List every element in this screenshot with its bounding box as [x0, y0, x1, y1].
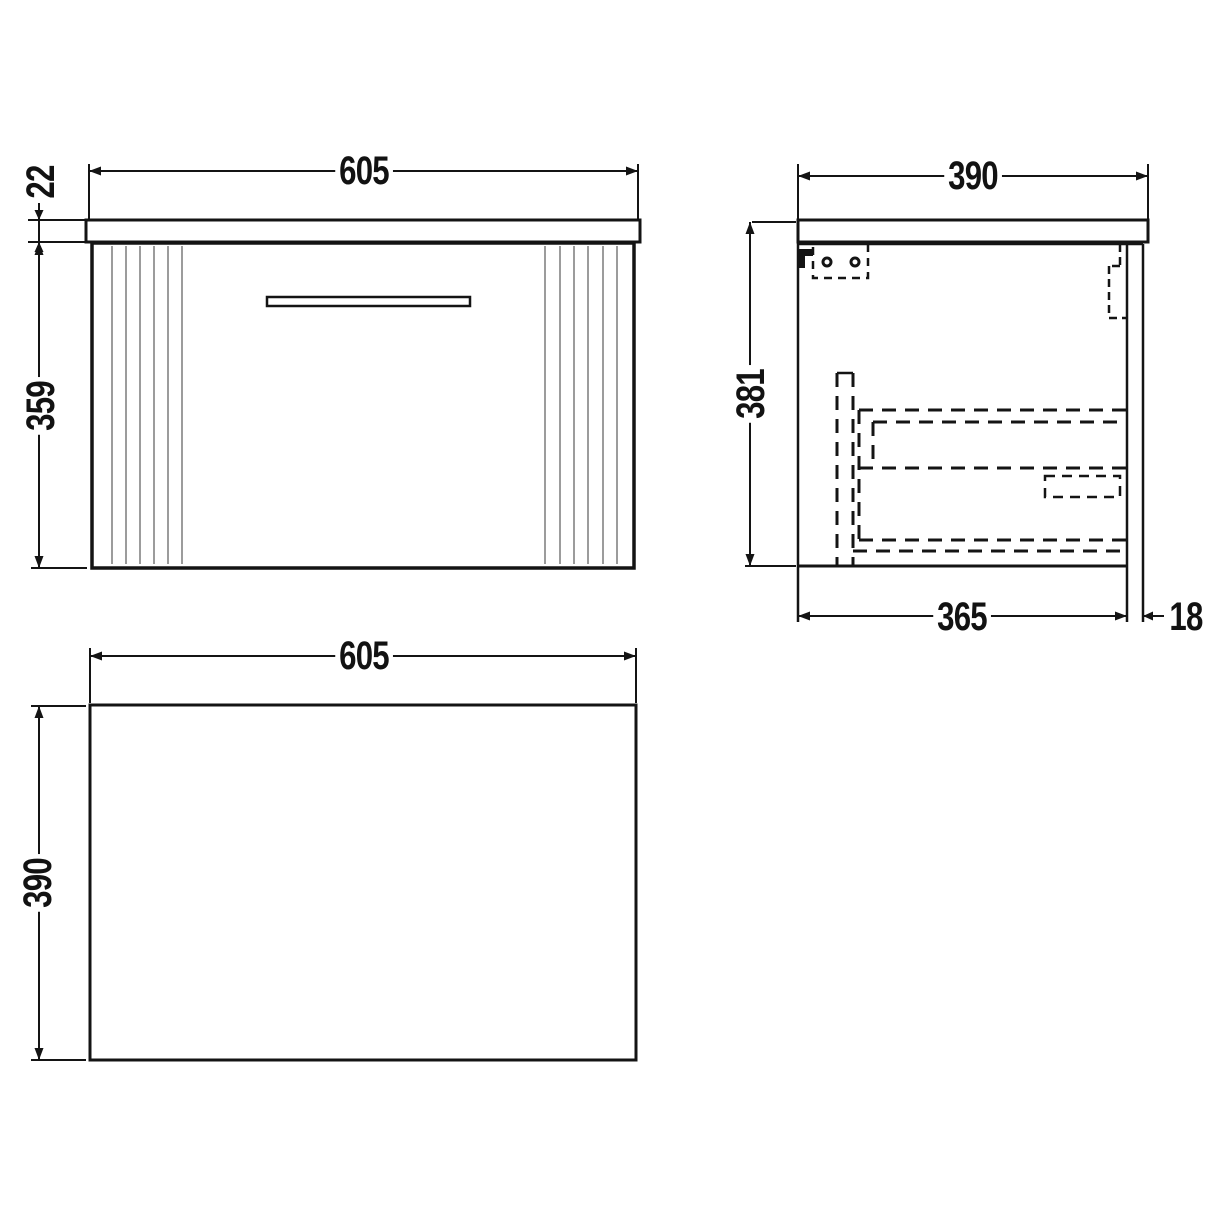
front-worktop [86, 220, 640, 242]
plan-worktop-outline [90, 705, 636, 1060]
technical-drawing [0, 0, 1224, 1224]
drawer-hidden-lines [837, 373, 1127, 566]
front-handle [267, 297, 470, 306]
wall-bracket-solid [798, 249, 813, 268]
side-worktop [798, 220, 1148, 242]
door-bracket-hidden [1109, 244, 1127, 318]
dim-label-front-width: 605 [335, 151, 393, 191]
front-view-drawing [86, 220, 640, 568]
dim-label-side-overall-depth: 390 [944, 156, 1002, 196]
drawing-sheet: 605 22 359 390 381 365 18 605 390 [0, 0, 1224, 1224]
dim-label-side-cabinet-depth: 365 [933, 597, 991, 637]
dim-label-side-panel-thickness: 18 [1166, 597, 1207, 637]
bracket-screw-hole [851, 258, 859, 266]
plan-view-drawing [90, 705, 636, 1060]
dim-label-side-overall-height: 381 [731, 365, 771, 423]
drawer-runner-hidden [1045, 476, 1120, 497]
bracket-screw-hole [823, 258, 831, 266]
dim-label-front-cabinet-height: 359 [21, 377, 61, 435]
side-view-drawing [798, 220, 1148, 622]
dim-label-plan-width: 605 [335, 636, 393, 676]
front-cabinet-body [92, 243, 634, 568]
dim-label-plan-depth: 390 [18, 854, 58, 912]
dim-label-front-worktop-thickness: 22 [21, 162, 61, 203]
